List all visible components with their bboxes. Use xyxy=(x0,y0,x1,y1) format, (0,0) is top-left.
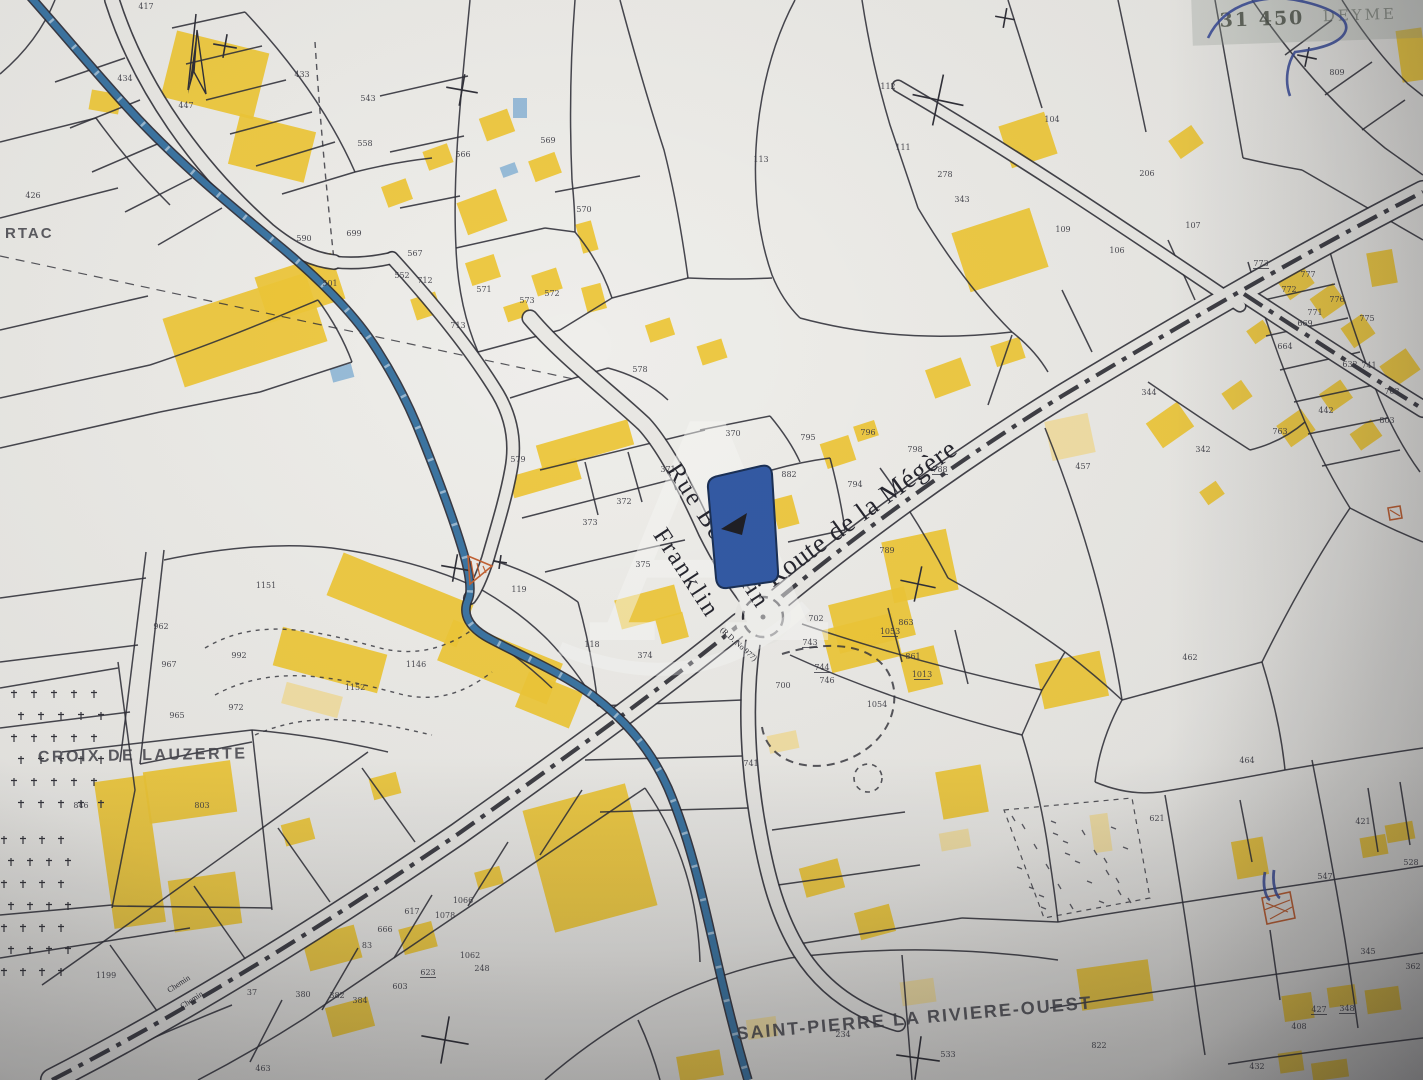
vignette-layer xyxy=(0,0,1423,1080)
map-stage: A417433434447543558426699590501567552712… xyxy=(0,0,1423,1080)
cadastral-map: A417433434447543558426699590501567552712… xyxy=(0,0,1423,1080)
cadastral-map-photo: { "meta": { "title": "Plan cadastral — p… xyxy=(0,0,1423,1080)
warm-tint xyxy=(0,0,1423,1080)
